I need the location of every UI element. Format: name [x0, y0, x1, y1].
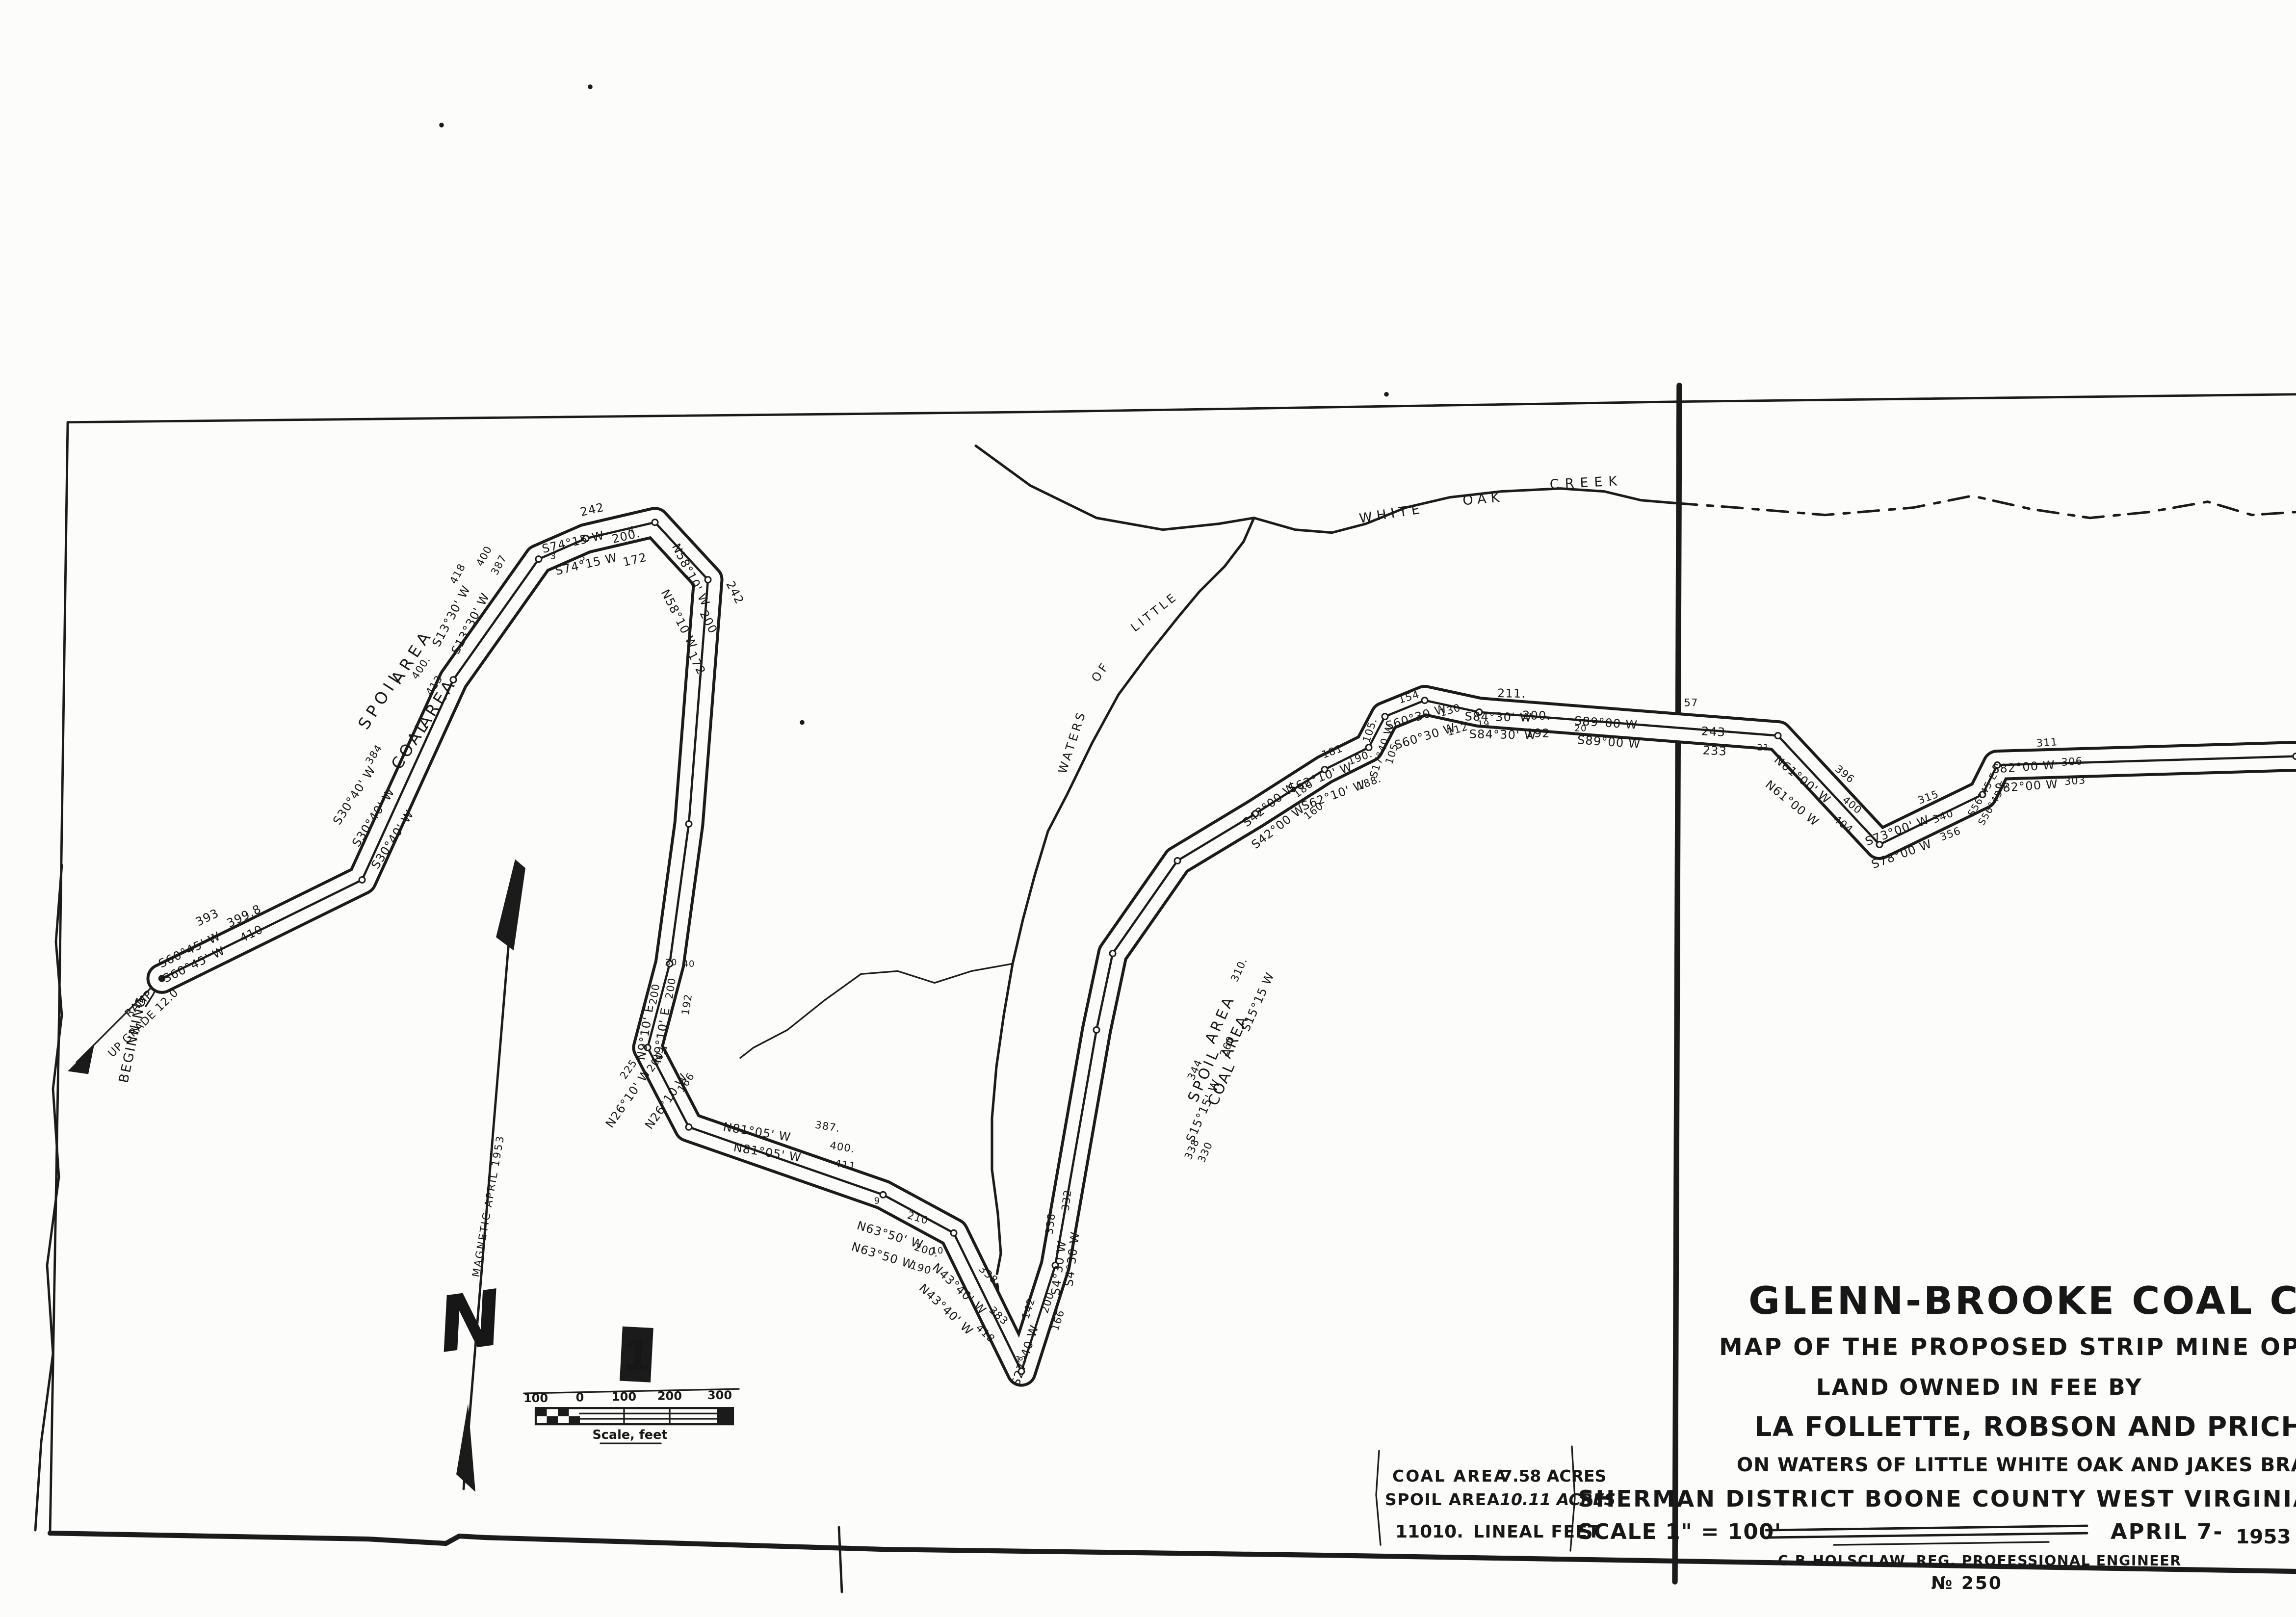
- owners-line: LA FOLLETTE, ROBSON AND PRICHARD: [1754, 1411, 2296, 1443]
- scale-tick-label: 200: [657, 1389, 682, 1403]
- scale-checker: [558, 1408, 569, 1416]
- company-title: GLENN-BROOKE COAL COMPANY: [1748, 1279, 2296, 1323]
- ink-speck: [1384, 392, 1389, 397]
- scale-tick-label: 0: [576, 1391, 584, 1405]
- north-arrow-fin: [456, 1404, 475, 1492]
- map-label: 242: [579, 500, 605, 519]
- info-box-left-bar: [1376, 1451, 1381, 1545]
- scale-tick-label: 100: [612, 1390, 636, 1404]
- survey-station: [1174, 858, 1180, 863]
- map-label: 310.: [1228, 956, 1250, 984]
- map-label: 200.: [1522, 708, 1551, 723]
- survey-station: [1094, 1027, 1099, 1033]
- survey-station: [1110, 950, 1116, 956]
- map-label: AREA: [387, 625, 437, 687]
- scale-bar: 100 0 100 200 300 Scale, feet: [523, 1388, 739, 1442]
- map-label: 243: [1701, 724, 1726, 739]
- border-top: [68, 394, 2296, 422]
- fold-line: [1675, 386, 1679, 1582]
- map-label: 387.: [814, 1119, 841, 1135]
- survey-station: [686, 821, 692, 827]
- map-label: 233: [1702, 743, 1727, 758]
- survey-station: [880, 1192, 886, 1198]
- map-label: 303: [2064, 774, 2086, 787]
- engineer-line: C.B.HOLSCLAW, REG. PROFESSIONAL ENGINEER: [1778, 1553, 2182, 1569]
- lineal-feet-value: 11010.: [1395, 1522, 1463, 1542]
- map-label: 190: [909, 1259, 933, 1277]
- scale-checker: [547, 1416, 558, 1424]
- survey-station: [359, 877, 365, 883]
- map-label: 19: [1477, 719, 1489, 730]
- map-label: 242: [723, 579, 746, 607]
- survey-station: [1775, 733, 1781, 739]
- scale-tick-label: 100: [523, 1391, 548, 1405]
- left-margin-wiggle: [35, 865, 62, 1530]
- map-label: 3: [550, 551, 557, 562]
- north-letter: N: [432, 1273, 508, 1370]
- sheet-number-marker: 1: [620, 1327, 653, 1382]
- date-label: APRIL 7-: [2111, 1520, 2223, 1544]
- map-label: 211.: [1497, 686, 1526, 701]
- map-label: 7: [662, 1045, 669, 1056]
- scale-bar-end-block: [717, 1408, 733, 1424]
- coal-area-label: COAL AREA: [1392, 1466, 1508, 1486]
- scale-tick-label: 300: [707, 1388, 732, 1402]
- map-label: WATERS: [1055, 708, 1089, 776]
- map-label: 5: [580, 553, 586, 563]
- strip-mine-map-sheet: 393399.8S60°45' W410S60°45' WSPOILAREACO…: [0, 0, 2296, 1617]
- district-line: SHERMAN DISTRICT BOONE COUNTY WEST VIRGI…: [1578, 1486, 2296, 1512]
- title-rule-3: [1834, 1542, 2049, 1545]
- map-label: 311: [2036, 736, 2058, 749]
- north-arrow: N MAGNETIC APRIL 1953: [432, 859, 525, 1492]
- survey-station: [705, 577, 711, 583]
- map-label: OAK: [1462, 490, 1504, 508]
- map-label: 20: [1574, 724, 1587, 734]
- title-block: GLENN-BROOKE COAL COMPANY MAP OF THE PRO…: [1578, 1279, 2296, 1593]
- map-label: 306: [2061, 755, 2083, 768]
- ink-speck: [439, 123, 444, 128]
- map-label: 387: [489, 552, 509, 577]
- survey-station: [536, 556, 542, 562]
- bottom-fold-tick: [839, 1527, 842, 1592]
- survey-station: [951, 1230, 957, 1236]
- map-label: 393: [193, 906, 221, 929]
- small-tributary: [740, 964, 1013, 1058]
- map-label: WHITE: [1358, 501, 1425, 526]
- map-label: OF: [1089, 659, 1113, 685]
- scale-caption: Scale, feet: [592, 1428, 667, 1442]
- spoil-area-label: SPOIL AREA: [1385, 1490, 1500, 1509]
- waters-line: ON WATERS OF LITTLE WHITE OAK AND JAKES …: [1737, 1454, 2296, 1476]
- map-label: 172: [622, 550, 648, 569]
- map-label: 9: [874, 1196, 881, 1206]
- map-label: 40: [682, 959, 695, 969]
- survey-station: [1422, 698, 1428, 704]
- map-label: LITTLE: [1128, 589, 1181, 634]
- map-label: 30: [665, 957, 677, 967]
- map-label: 400.: [829, 1139, 856, 1155]
- map-subtitle: MAP OF THE PROPOSED STRIP MINE OPERATION: [1719, 1333, 2296, 1361]
- drawing-number: № 250: [1931, 1573, 2003, 1593]
- scale-statement: SCALE 1" = 100': [1578, 1520, 1782, 1544]
- title-rule-2: [1766, 1533, 2087, 1538]
- survey-station: [686, 1124, 692, 1130]
- survey-bearing-labels: 393399.8S60°45' W410S60°45' WSPOILAREACO…: [105, 473, 2086, 1388]
- map-label: 418: [447, 561, 468, 586]
- coal-area-value: 7.58 ACRES: [1501, 1466, 1606, 1486]
- title-rule-1: [1766, 1526, 2087, 1530]
- survey-station: [652, 520, 658, 525]
- map-label: 192: [1526, 726, 1550, 740]
- ramp-arrowhead: [68, 1044, 94, 1074]
- year-label: 1953: [2236, 1525, 2291, 1548]
- map-label: 10: [931, 1246, 943, 1256]
- map-label: 400: [474, 544, 495, 568]
- map-label: 4: [628, 525, 635, 535]
- map-label: S15°15 W: [1239, 970, 1277, 1033]
- map-label: CREEK: [1549, 473, 1623, 493]
- map-label: 192: [679, 993, 695, 1016]
- survey-station: [2293, 754, 2296, 759]
- scale-checker: [536, 1408, 547, 1416]
- ink-speck: [588, 84, 593, 89]
- sheet-number: 1: [621, 1331, 652, 1381]
- white-oak-creek-east: [1676, 496, 2296, 518]
- ink-speck: [800, 720, 805, 725]
- land-owned-line: LAND OWNED IN FEE BY: [1816, 1374, 2143, 1400]
- map-label: 21: [1757, 743, 1769, 753]
- scale-checker: [569, 1416, 580, 1424]
- map-label: 57: [1684, 697, 1698, 709]
- map-label: 384: [363, 742, 385, 767]
- magnetic-note: MAGNETIC APRIL 1953: [470, 1134, 507, 1278]
- little-white-oak-branch: [992, 518, 1254, 1254]
